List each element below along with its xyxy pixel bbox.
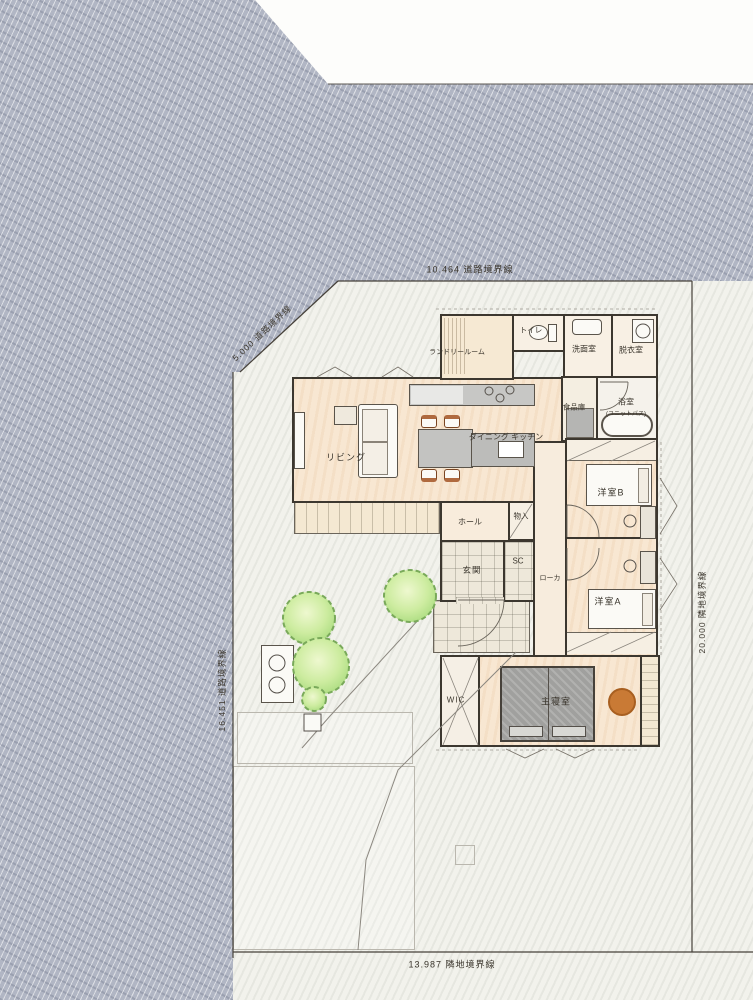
boundary-left-label: 16.451 道路境界線 bbox=[216, 649, 228, 732]
plan-linework bbox=[0, 0, 753, 1000]
room-label-living: リビング bbox=[326, 451, 366, 464]
cooktop-burner-icon bbox=[506, 386, 514, 394]
entrance-door-arc bbox=[458, 600, 504, 646]
trees bbox=[283, 570, 436, 711]
room-label-toilet: トイレ bbox=[520, 325, 543, 336]
room-label-bath: 浴室 bbox=[618, 397, 634, 408]
room-label-pantry: 食品庫 bbox=[563, 402, 586, 413]
desk-chair-icon bbox=[624, 560, 636, 572]
tree-icon bbox=[302, 687, 326, 711]
cooktop-burner-icon bbox=[485, 387, 493, 395]
room-label-dressing: 脱衣室 bbox=[619, 345, 643, 356]
room-label-corridor: ローカ bbox=[540, 573, 561, 583]
roof-dashed-lines bbox=[436, 309, 661, 750]
boundary-right-label: 20.000 隣地境界線 bbox=[696, 571, 708, 654]
room-label-laundry: ランドリールーム bbox=[429, 347, 485, 357]
window-marks bbox=[317, 367, 677, 758]
planter-pot-icon bbox=[269, 677, 285, 693]
room-label-western-b: 洋室B bbox=[597, 486, 624, 499]
tree-icon bbox=[293, 638, 349, 694]
room-label-dining-kitchen: ダイニング キッチン bbox=[469, 432, 543, 443]
garden-stone bbox=[304, 714, 321, 731]
room-label-wic: WIC bbox=[447, 696, 466, 705]
floor-plan: 10.464 道路境界線 5.000 道路境界線 16.451 道路境界線 20… bbox=[0, 0, 753, 1000]
tree-icon bbox=[283, 592, 335, 644]
room-label-bath-sub: (ユニットバス) bbox=[606, 409, 646, 418]
western-a-door-arc bbox=[567, 548, 599, 580]
room-label-shoe-closet: SC bbox=[512, 557, 523, 566]
planter-pot-icon bbox=[269, 655, 285, 671]
western-b-door-arc bbox=[567, 505, 599, 537]
room-label-western-a: 洋室A bbox=[594, 595, 621, 608]
boundary-top-label: 10.464 道路境界線 bbox=[426, 263, 513, 276]
room-label-entrance: 玄関 bbox=[462, 564, 481, 576]
tree-icon bbox=[384, 570, 436, 622]
room-label-storage: 物入 bbox=[514, 511, 529, 522]
room-label-master: 主寝室 bbox=[541, 695, 571, 708]
cooktop-burner-icon bbox=[496, 394, 504, 402]
room-label-washroom: 洗面室 bbox=[572, 344, 596, 355]
desk-chair-icon bbox=[624, 515, 636, 527]
washer-drum-icon bbox=[636, 324, 650, 338]
boundary-bottom-label: 13.987 隣地境界線 bbox=[408, 958, 495, 971]
room-label-hall: ホール bbox=[458, 517, 482, 528]
